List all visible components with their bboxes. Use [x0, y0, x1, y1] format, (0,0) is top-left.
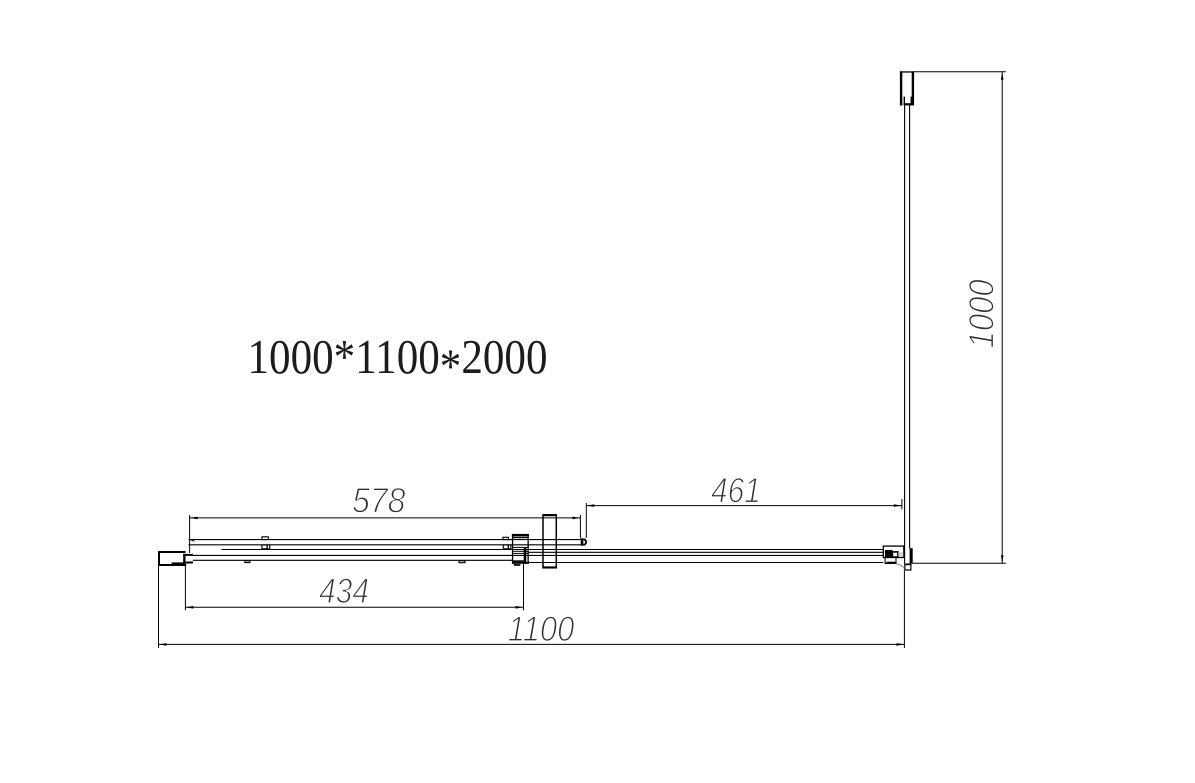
svg-text:434: 434 [319, 571, 369, 611]
svg-text:1000: 1000 [962, 279, 1002, 348]
svg-text:1000*1100*2000: 1000*1100*2000 [248, 329, 548, 394]
svg-text:578: 578 [352, 481, 406, 521]
svg-text:461: 461 [711, 471, 761, 511]
svg-text:1100: 1100 [508, 609, 575, 649]
